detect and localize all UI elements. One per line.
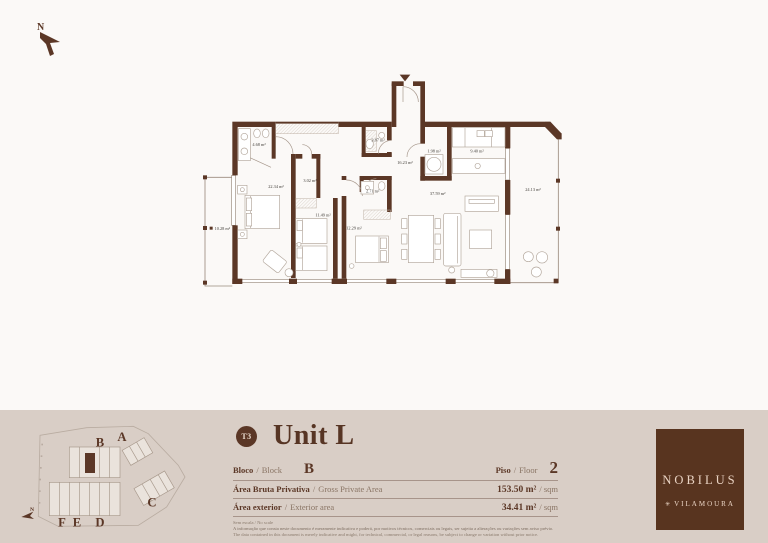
- disclaimer-en: The data contained in this document is m…: [233, 532, 558, 538]
- furniture: [238, 128, 548, 278]
- highlighted-unit: [85, 453, 95, 473]
- room-area-living-dining: 37.59 m²: [430, 191, 446, 196]
- compass-north-label: N: [37, 22, 45, 33]
- disclaimer: Sem escala / No scale A informação que c…: [233, 520, 558, 539]
- block-letter-f: F: [58, 515, 66, 529]
- block-letter-d: D: [95, 515, 104, 529]
- type-badge: T3: [236, 426, 257, 447]
- entrance-marker-icon: [400, 75, 411, 82]
- block-letter-a: A: [117, 430, 127, 444]
- unit-title: Unit L: [273, 420, 355, 452]
- label-separator: /: [285, 502, 287, 512]
- brochure-page: N: [0, 0, 768, 543]
- label-separator: /: [514, 465, 516, 475]
- room-area-wc: 3.87 m²: [371, 137, 385, 142]
- brand-location-row: ✳ VILAMOURA: [665, 500, 735, 508]
- room-area-terrace-right: 24.13 m²: [525, 187, 541, 192]
- exterior-area-row: Área exterior / Exterior area 34.41 m² /…: [233, 499, 558, 517]
- block-label-en: Block: [262, 465, 282, 475]
- room-area-bathroom-2: 2.71 m²: [366, 188, 380, 193]
- exterior-area-value: 34.41 m²: [502, 503, 537, 513]
- gross-area-label-en: Gross Private Area: [318, 484, 382, 494]
- exterior-area-label-en: Exterior area: [290, 502, 334, 512]
- label-separator: /: [313, 484, 315, 494]
- room-area-kitchen: 9.40 m²: [470, 149, 484, 154]
- block-letter-b: B: [96, 435, 105, 449]
- block-label-pt: Bloco: [233, 465, 253, 475]
- compass-arrow-icon: [40, 32, 60, 56]
- brand-logo: NOBILUS ✳ VILAMOURA: [656, 429, 744, 530]
- room-area-bedroom-1: 22.34 m²: [268, 184, 284, 189]
- floor-label-en: Floor: [519, 465, 537, 475]
- flower-icon: ✳: [665, 501, 672, 508]
- exterior-area-unit: / sqm: [539, 502, 558, 512]
- unit-header: T3 Unit L: [233, 419, 558, 453]
- gross-area-value: 153.50 m²: [497, 485, 536, 495]
- north-compass-icon: N: [33, 18, 63, 56]
- gross-area-row: Área Bruta Privativa / Gross Private Are…: [233, 481, 558, 499]
- floor-plan: 4.68 m² 3.87 m² 1.98 m² 9.40 m² 16.23 m²…: [195, 70, 575, 320]
- floor-label-pt: Piso: [496, 465, 511, 475]
- room-area-bedroom-2: 11.49 m²: [315, 212, 331, 217]
- brand-name: NOBILUS: [662, 473, 737, 488]
- room-area-laundry: 1.98 m²: [427, 149, 441, 154]
- room-area-hall: 16.23 m²: [397, 160, 413, 165]
- block-letter-c: C: [147, 495, 156, 509]
- unit-info-panel: T3 Unit L Bloco / Block B Piso / Floor 2: [233, 419, 558, 539]
- site-plan: A B C D E F N: [20, 417, 196, 537]
- room-area-bathroom-1: 4.68 m²: [252, 142, 266, 147]
- exterior-area-label-pt: Área exterior: [233, 502, 282, 512]
- room-area-terrace-left: 10.28 m²: [215, 226, 231, 231]
- room-area-bedroom-3: 12.29 m²: [346, 225, 362, 230]
- floor-value: 2: [550, 459, 559, 476]
- label-separator: /: [256, 465, 258, 475]
- room-area-closet: 3.02 m²: [303, 178, 317, 183]
- block-letter-e: E: [73, 515, 81, 529]
- block-floor-row: Bloco / Block B Piso / Floor 2: [233, 456, 558, 481]
- site-compass-icon: N: [21, 507, 35, 519]
- site-compass-arrow-icon: [21, 512, 34, 519]
- gross-area-label-pt: Área Bruta Privativa: [233, 484, 310, 494]
- brand-location: VILAMOURA: [674, 500, 735, 508]
- block-value: B: [304, 462, 314, 477]
- unit-detail-rows: Bloco / Block B Piso / Floor 2 Área Brut…: [233, 456, 558, 517]
- gross-area-unit: / sqm: [539, 484, 558, 494]
